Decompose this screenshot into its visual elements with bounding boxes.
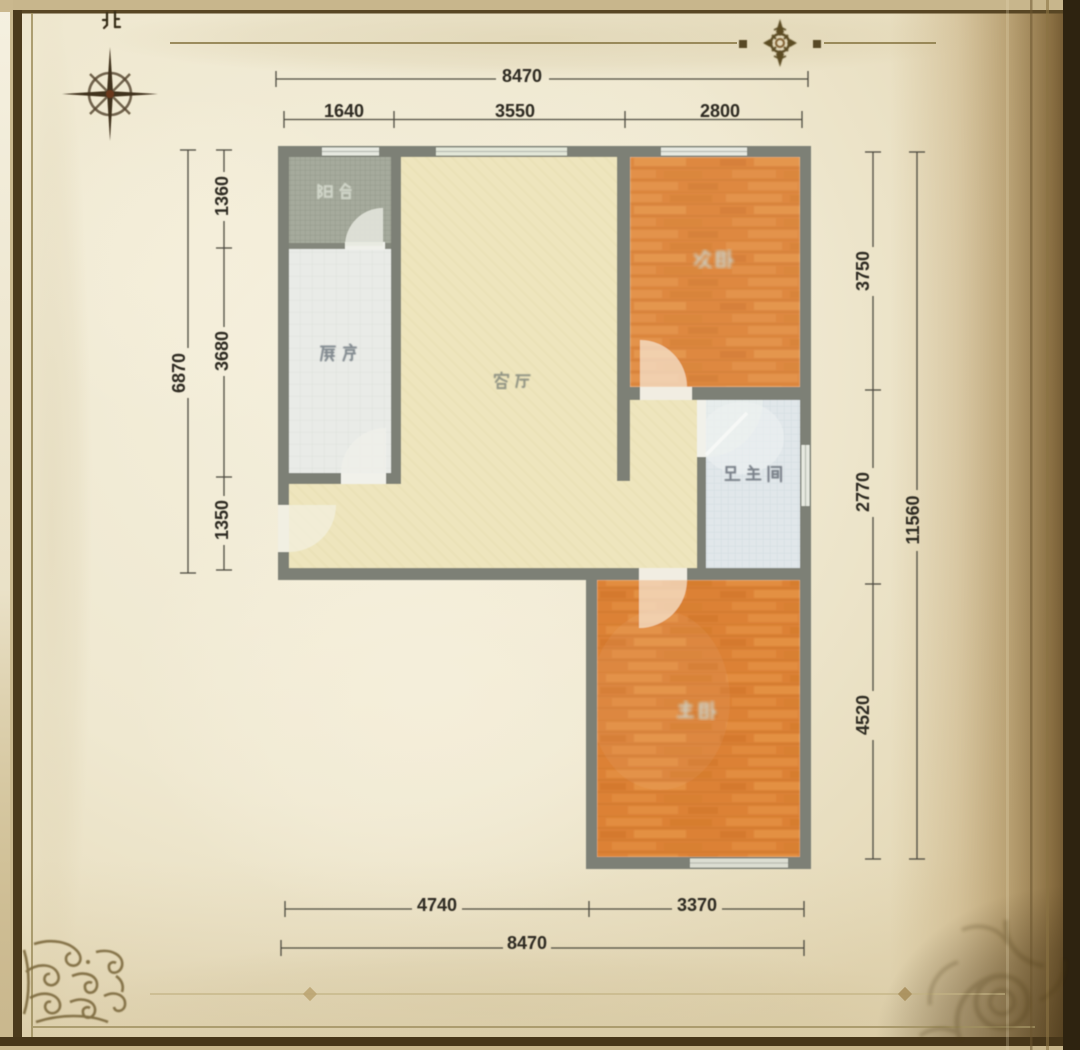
svg-text:3370: 3370: [677, 895, 717, 915]
svg-text:1360: 1360: [212, 176, 232, 216]
svg-text:8470: 8470: [507, 933, 547, 953]
svg-text:3680: 3680: [212, 331, 232, 371]
svg-text:2770: 2770: [853, 472, 873, 512]
svg-text:6870: 6870: [169, 353, 189, 393]
svg-text:3550: 3550: [495, 101, 535, 121]
svg-text:4520: 4520: [853, 695, 873, 735]
svg-text:4740: 4740: [417, 895, 457, 915]
svg-text:8470: 8470: [502, 66, 542, 86]
svg-text:3750: 3750: [853, 251, 873, 291]
svg-text:11560: 11560: [903, 495, 923, 544]
svg-text:2800: 2800: [700, 101, 740, 121]
svg-text:1350: 1350: [212, 500, 232, 540]
svg-text:1640: 1640: [324, 101, 364, 121]
